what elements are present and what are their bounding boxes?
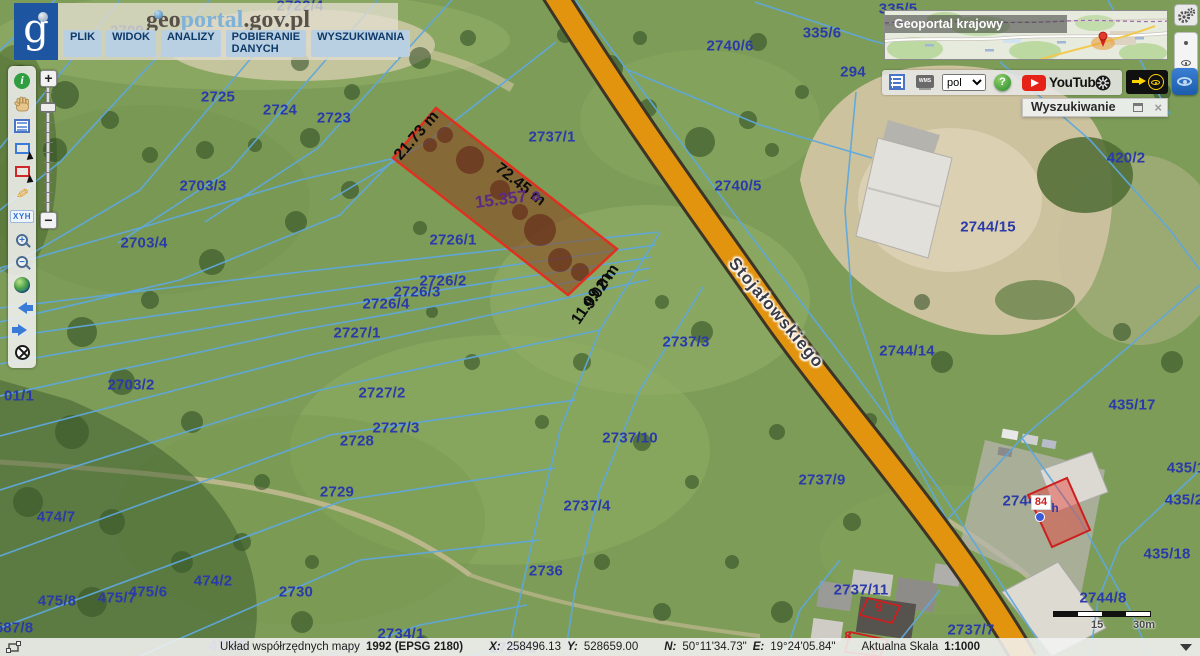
attribute-table-tool[interactable] <box>12 117 32 135</box>
zoom-out-button[interactable]: − <box>40 212 57 229</box>
center-view-tool[interactable] <box>12 344 32 362</box>
zoom-out-tool[interactable]: − <box>12 253 32 271</box>
coord-x: 258496.13 <box>507 641 561 653</box>
scale-end-label: 30m <box>1133 619 1155 631</box>
zoom-in-tool[interactable]: + <box>12 231 32 249</box>
header-panel: geoportal.gov.pl PLIKWIDOKANALIZYPOBIERA… <box>58 3 398 60</box>
next-view-tool[interactable] <box>12 321 32 339</box>
address-badge: 84 <box>1031 495 1051 510</box>
minimap-hide-option[interactable] <box>1175 33 1197 53</box>
xyh-coordinates-tool[interactable]: XYH <box>12 208 32 226</box>
top-right-toolbar: WMS pol ? YouTube <box>882 70 1122 95</box>
visibility-eye-button[interactable] <box>1172 68 1198 95</box>
language-select[interactable]: pol <box>942 74 986 91</box>
overview-minimap[interactable]: Geoportal krajowy <box>884 10 1168 60</box>
eye-pupil <box>1183 80 1188 85</box>
left-toolbar: i ✎ XYH + − <box>8 66 36 368</box>
draw-pencil-tool[interactable]: ✎ <box>12 185 32 203</box>
geoportal-app: 27092722/42725272427232703/32703/42737/1… <box>0 0 1200 656</box>
select-rectangle-tool[interactable] <box>12 140 32 158</box>
scale-label: Aktualna Skala <box>862 641 939 653</box>
status-bar: Układ współrzędnych mapy 1992 (EPSG 2180… <box>0 638 1200 656</box>
menu-item-wyszukiwania[interactable]: WYSZUKIWANIA <box>311 30 410 57</box>
measure-icon[interactable] <box>6 641 22 653</box>
minimap-title-bar: Geoportal krajowy <box>885 15 1067 33</box>
dot-icon <box>1184 41 1188 45</box>
wheel-icon <box>1094 74 1112 92</box>
search-panel-title: Wyszukiwanie <box>1031 100 1116 114</box>
coord-e: 19°24'05.84" <box>770 641 835 653</box>
small-eye-icon <box>1181 60 1191 66</box>
main-menu: PLIKWIDOKANALIZYPOBIERANIE DANYCHWYSZUKI… <box>64 30 410 57</box>
menu-item-pobieranie-danych[interactable]: POBIERANIE DANYCH <box>226 30 306 57</box>
expand-caret-icon[interactable] <box>1180 644 1192 651</box>
menu-item-plik[interactable]: PLIK <box>64 30 101 57</box>
previous-view-tool[interactable] <box>12 299 32 317</box>
deselect-rectangle-tool[interactable] <box>12 163 32 181</box>
contrast-arrow-icon[interactable] <box>1132 80 1140 83</box>
wms-button[interactable]: WMS <box>916 75 934 88</box>
contrast-eye-icon[interactable] <box>1148 74 1164 90</box>
coord-n: 50°11'34.73" <box>682 641 746 653</box>
help-button[interactable]: ? <box>994 74 1011 91</box>
accessibility-contrast-panel <box>1126 70 1168 94</box>
scale-value: 1:1000 <box>944 641 980 653</box>
map-canvas[interactable] <box>0 0 1200 656</box>
close-icon[interactable]: × <box>1154 103 1162 113</box>
crs-label: Układ współrzędnych mapy <box>220 641 360 653</box>
minimap-settings-button[interactable] <box>1174 4 1198 26</box>
menu-item-widok[interactable]: WIDOK <box>106 30 156 57</box>
zoom-in-button[interactable]: + <box>40 70 57 87</box>
crs-value: 1992 (EPSG 2180) <box>366 641 463 653</box>
youtube-play-icon <box>1022 75 1046 91</box>
scale-bar <box>1053 611 1151 617</box>
full-extent-globe-tool[interactable] <box>12 276 32 294</box>
title-ball-icon <box>154 10 163 19</box>
scale-mid-label: 15 <box>1091 619 1103 631</box>
gears-icon <box>1175 5 1197 25</box>
coord-y: 528659.00 <box>584 641 638 653</box>
info-tool[interactable]: i <box>12 72 32 90</box>
youtube-button[interactable]: YouTube <box>1022 73 1103 92</box>
legend-button[interactable] <box>889 74 905 90</box>
pan-hand-tool[interactable] <box>12 95 32 113</box>
minimap-title: Geoportal krajowy <box>894 17 1003 31</box>
zoom-slider-handle[interactable] <box>40 103 56 112</box>
geoportal-logo[interactable]: g <box>14 3 58 60</box>
menu-item-analizy[interactable]: ANALIZY <box>161 30 221 57</box>
logo-ball-icon <box>38 12 48 22</box>
restore-window-icon[interactable] <box>1133 103 1143 112</box>
settings-wheel-button[interactable] <box>1094 74 1112 92</box>
search-panel-header[interactable]: Wyszukiwanie × <box>1022 98 1168 117</box>
